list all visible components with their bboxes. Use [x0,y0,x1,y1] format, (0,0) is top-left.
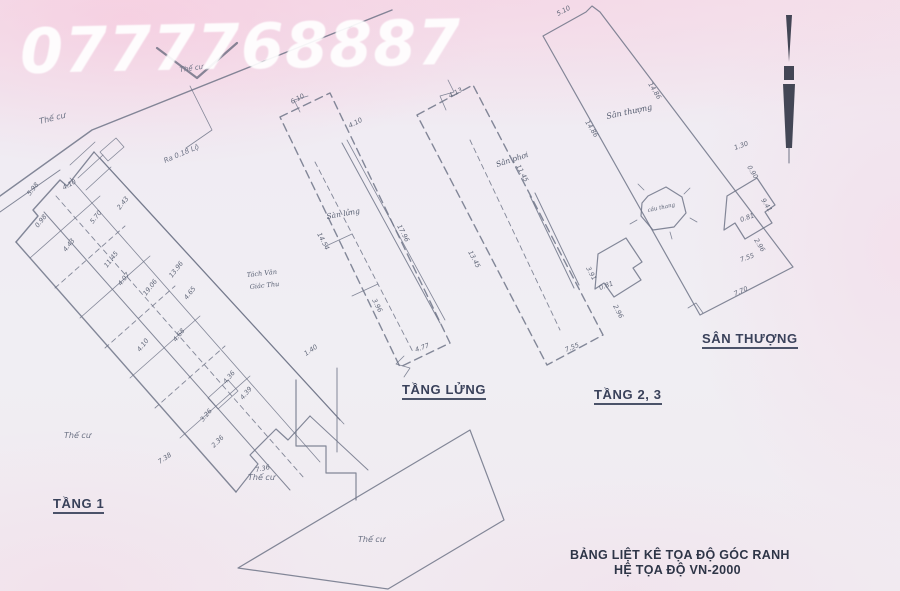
neighbor-parcel-quad [238,430,504,589]
dimension-label: 4.36 [221,369,236,385]
dimension-label: 13.96 [167,260,185,280]
dimension-label: 14.86 [583,119,600,139]
dimension-label: 3.26 [198,407,213,423]
dimension-label: 7.70 [733,285,749,298]
dimension-label: 14.86 [646,81,663,101]
plan-label-san-thuong: SÂN THƯỢNG [702,331,798,349]
plan-label-tang-2-3: TẦNG 2, 3 [594,387,662,405]
dimension-label: 0.81 [598,279,614,291]
dimension-label: 4.13 [447,86,464,100]
street-note: Ra 0.18 Lộ [163,143,201,165]
dimension-label: 11.45 [514,163,530,183]
scanned-floor-plan-page: 5.98 0.98 4.43 5.70 2.43 4.10 11.45 4.07… [0,0,900,591]
dimension-label: 13.45 [466,249,482,269]
dimension-label: 2.96 [752,237,766,254]
neighbor-parcel-outlines [238,368,504,589]
dimension-label: 4.39 [238,385,253,401]
floor-plan-drawing: 5.98 0.98 4.43 5.70 2.43 4.10 11.45 4.07… [0,0,900,591]
land-note: Thế cư [358,534,386,544]
dimension-label: 7.38 [157,451,173,466]
caption-line-2: HỆ TỌA ĐỘ VN-2000 [570,563,785,578]
plan-inner-label-san-lung: Sàn lửng [326,206,361,221]
land-note: Thế cư [38,110,67,126]
dimension-label: 5.70 [88,209,103,225]
dimension-label: 4.10 [61,178,78,192]
dimension-label: 6.10 [289,92,306,106]
mezzanine-outline [280,93,450,367]
dimension-label: 0.81 [739,211,755,223]
dimension-label: 4.65 [182,285,197,301]
dimension-label: 4.68 [171,327,186,343]
dimension-label: 4.10 [347,116,364,130]
plan-tang-lung [280,93,450,377]
neighbor-note: Tách Văn [246,268,277,279]
dimension-label: 0.98 [33,213,48,229]
dimension-labels-tang-2-3: 4.13 11.45 13.45 3.91 0.81 2.96 7.55 [447,86,625,354]
plan-inner-label-stair: cầu thang [647,200,676,214]
dimension-label: 19.06 [141,278,159,298]
dimension-label: 7.55 [739,251,755,263]
dimension-label: 2.96 [611,303,625,320]
dimension-label: 2.36 [210,434,226,450]
dimension-label: 5.98 [25,181,40,197]
coordinate-table-caption: BẢNG LIỆT KÊ TỌA ĐỘ GÓC RANH HỆ TỌA ĐỘ V… [570,548,810,578]
plan-label-tang-1: TẦNG 1 [53,496,104,514]
plan-inner-label-san-thuong: Sân thượng [606,102,653,120]
dimension-label: 3.96 [370,297,384,314]
plan-inner-label-san-phoi: Sân phơi [495,150,530,169]
land-note: Thế cư [248,472,276,482]
parcel-top-edge [16,152,94,242]
land-use-notes: Thế cư Thế cư Thế cư Thế cư Thế cư Ra 0.… [38,63,386,544]
dimension-label: 14.54 [315,231,331,251]
plan-inner-labels: Sàn lửng Sân phơi Sân thượng cầu thang [326,102,676,220]
dimension-label: 1.30 [733,139,749,151]
dimension-label: 4.77 [414,341,431,354]
neighbor-note: Giác Thu [249,280,279,291]
dimension-label: 1.40 [303,343,319,358]
dimension-label: 4.10 [135,337,150,353]
dimension-labels-tang-lung: 6.10 4.10 14.54 17.96 3.96 4.77 [289,92,431,354]
dimension-label: 2.43 [115,195,130,211]
plan-tang-2-3 [417,80,642,365]
plan-label-tang-lung: TẦNG LỬNG [402,382,486,400]
caption-line-1: BẢNG LIỆT KÊ TỌA ĐỘ GÓC RANH [570,548,810,563]
dimension-label: 4.07 [116,270,132,287]
land-note: Thế cư [64,430,92,440]
dimension-label: 4.43 [61,237,76,253]
